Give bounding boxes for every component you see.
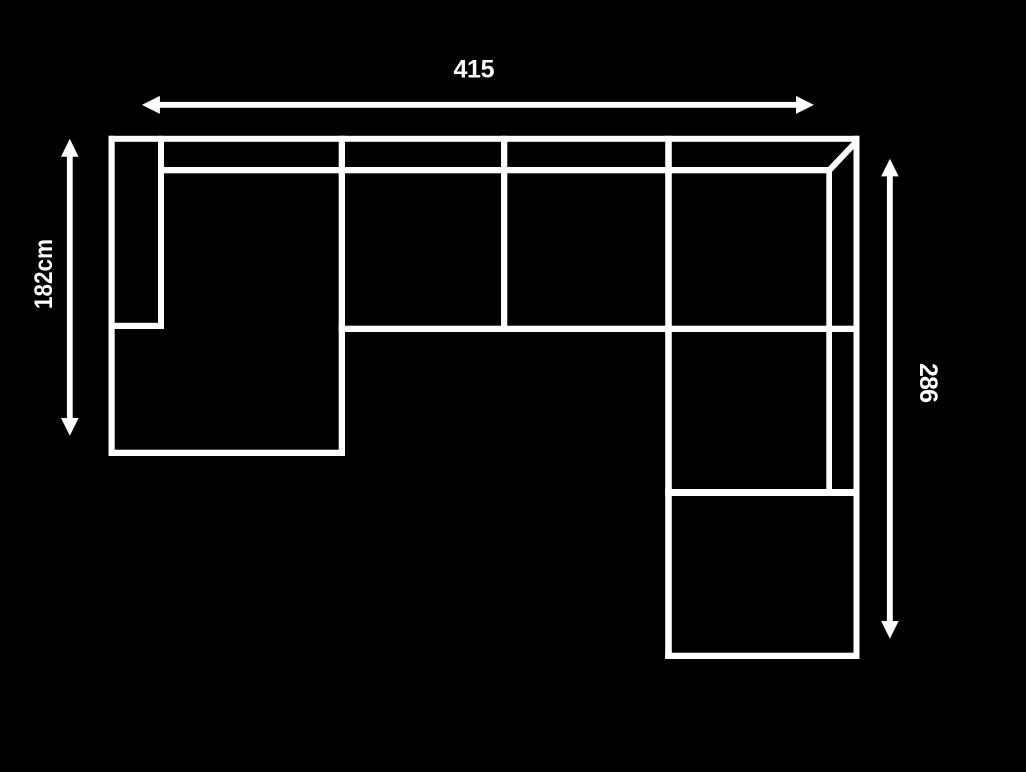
svg-text:415: 415 — [454, 56, 495, 84]
svg-text:182cm: 182cm — [30, 239, 58, 309]
svg-text:286: 286 — [914, 363, 942, 403]
